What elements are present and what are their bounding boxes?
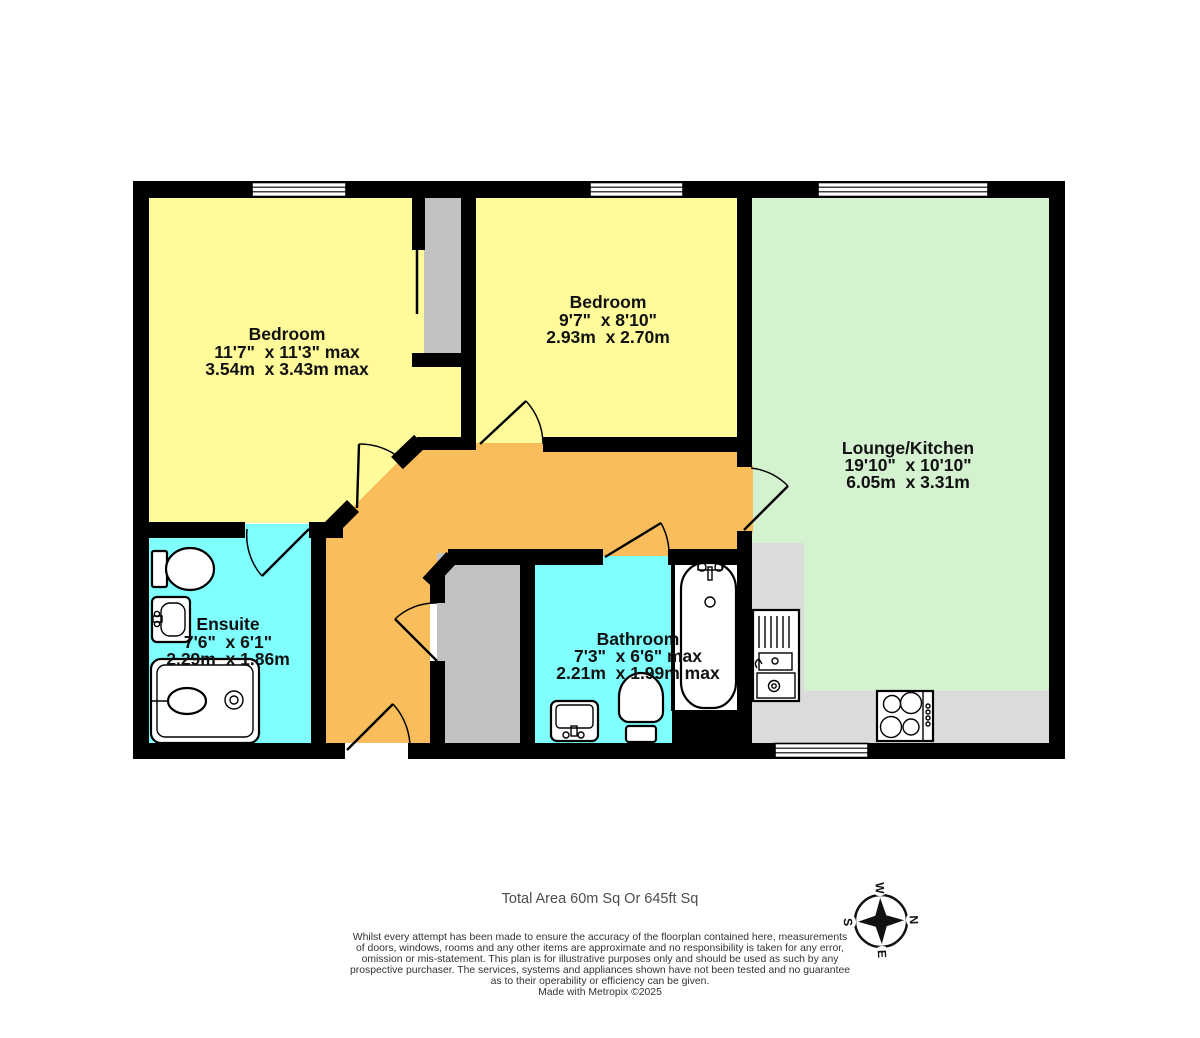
bedroom-2-label: Bedroom [570,292,647,312]
wall-between-bedrooms [461,198,476,450]
total-area-text: Total Area 60m Sq Or 645ft Sq [502,891,699,907]
bathroom-size-metric: 2.21m x 1.99m max [556,663,720,683]
disclaimer-line-2: of doors, windows, rooms and any other i… [356,943,844,954]
wardrobe-wall-stub [412,198,425,250]
bathtub [681,563,736,708]
bathroom-sink [551,701,598,741]
ensuite-toilet [152,548,214,590]
wall-outer-left [133,181,149,759]
compass-w: W [872,882,886,894]
bedroom-2-size-metric: 2.93m x 2.70m [546,327,670,347]
compass-n: N [907,915,921,924]
kitchen-sink-unit [753,610,799,701]
credit-text: Made with Metropix ©2025 [538,987,662,998]
wall-outer-bottom [133,743,1065,759]
wall-bathroom-left [520,549,535,759]
wardrobe-bottom-cap [412,353,462,367]
wall-lounge-upper [737,198,752,467]
footer: Total Area 60m Sq Or 645ft Sq Whilst eve… [350,891,850,998]
disclaimer-line-4: prospective purchaser. The services, sys… [350,965,850,976]
wall-outer-right [1049,181,1065,759]
window-kitchen [775,744,868,758]
wall-under-bathtub [672,710,752,750]
disclaimer-line-5: as to their operability or efficiency ca… [491,976,710,987]
ensuite-size-metric: 2.29m x 1.86m [166,649,290,669]
disclaimer-line-3: omission or mis-statement. This plan is … [362,954,840,965]
entrance-door-gap [345,743,408,759]
bedroom-1-label: Bedroom [249,324,326,344]
kitchen-hob [877,691,933,741]
compass-star [857,897,905,945]
floorplan-page: Bedroom 11'7" x 11'3" max 3.54m x 3.43m … [0,0,1200,1038]
window-bedroom2 [590,183,683,197]
wardrobe-floor [424,198,462,358]
ensuite-shower [151,659,259,743]
lounge-kitchen-size-metric: 6.05m x 3.31m [846,472,970,492]
wall-bedroom1-ensuite-left [133,522,245,538]
wall-bedroom2-bottom [543,437,744,452]
closet-floor [437,553,527,751]
wall-ensuite-right [311,522,326,759]
bedroom-1-size-metric: 3.54m x 3.43m max [205,359,369,379]
disclaimer-line-1: Whilst every attempt has been made to en… [353,932,847,943]
bathroom-toilet [619,673,663,742]
wall-closet-left-lower [430,661,445,756]
ensuite-label: Ensuite [196,614,259,634]
floorplan-canvas: Bedroom 11'7" x 11'3" max 3.54m x 3.43m … [0,0,1200,1038]
compass-e: E [875,950,889,958]
window-lounge [818,183,988,197]
compass-s: S [841,918,855,926]
window-bedroom1 [252,183,346,197]
compass-icon: N E S W [839,879,924,964]
